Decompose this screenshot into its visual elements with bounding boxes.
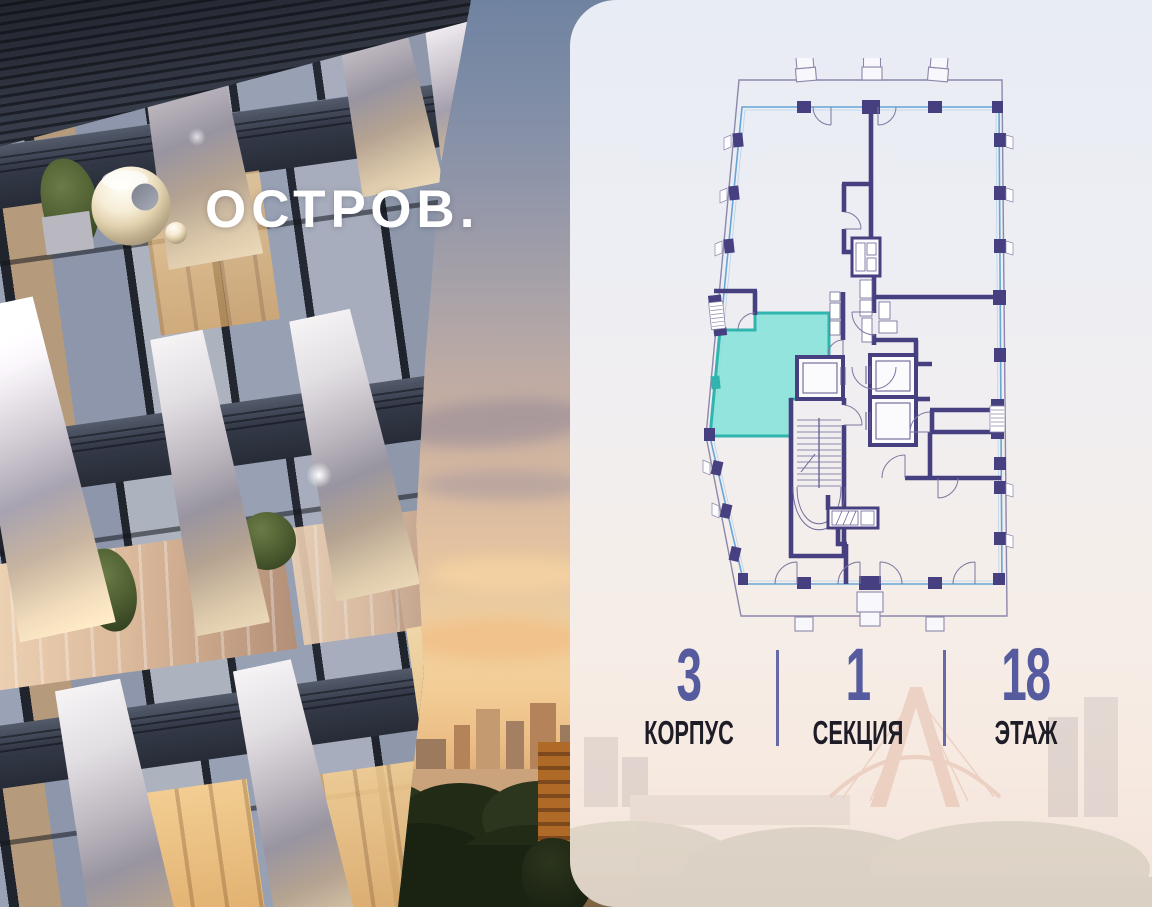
cloud [430,556,590,592]
stat-floor-value: 18 [1002,645,1051,705]
screenshot-root: ОСТРОВ. [0,0,1152,907]
stat-section: 1 СЕКЦИЯ [789,645,927,748]
stat-section-value: 1 [846,645,870,705]
ostrov-logo-mark [85,160,195,252]
chute [832,511,874,525]
sun-glint [306,462,332,488]
stat-floor: 18 ЭТАЖ [978,645,1073,748]
cloud [394,393,597,453]
floor-plan [688,58,1024,684]
stat-floor-label: ЭТАЖ [995,718,1058,748]
cloud [408,618,588,660]
stat-building-value: 3 [677,645,701,705]
stat-divider [943,650,946,746]
sun-glint [188,128,206,146]
stat-building: 3 КОРПУС [621,645,757,748]
fixtures [830,243,897,342]
ostrov-logo-text: ОСТРОВ. [205,183,479,236]
stat-section-label: СЕКЦИЯ [813,718,904,748]
elevator-shafts [797,355,916,445]
cloud [420,470,590,500]
stat-building-label: КОРПУС [644,718,734,748]
info-panel: 3 КОРПУС 1 СЕКЦИЯ 18 ЭТАЖ [570,0,1152,907]
stat-divider [776,650,779,746]
